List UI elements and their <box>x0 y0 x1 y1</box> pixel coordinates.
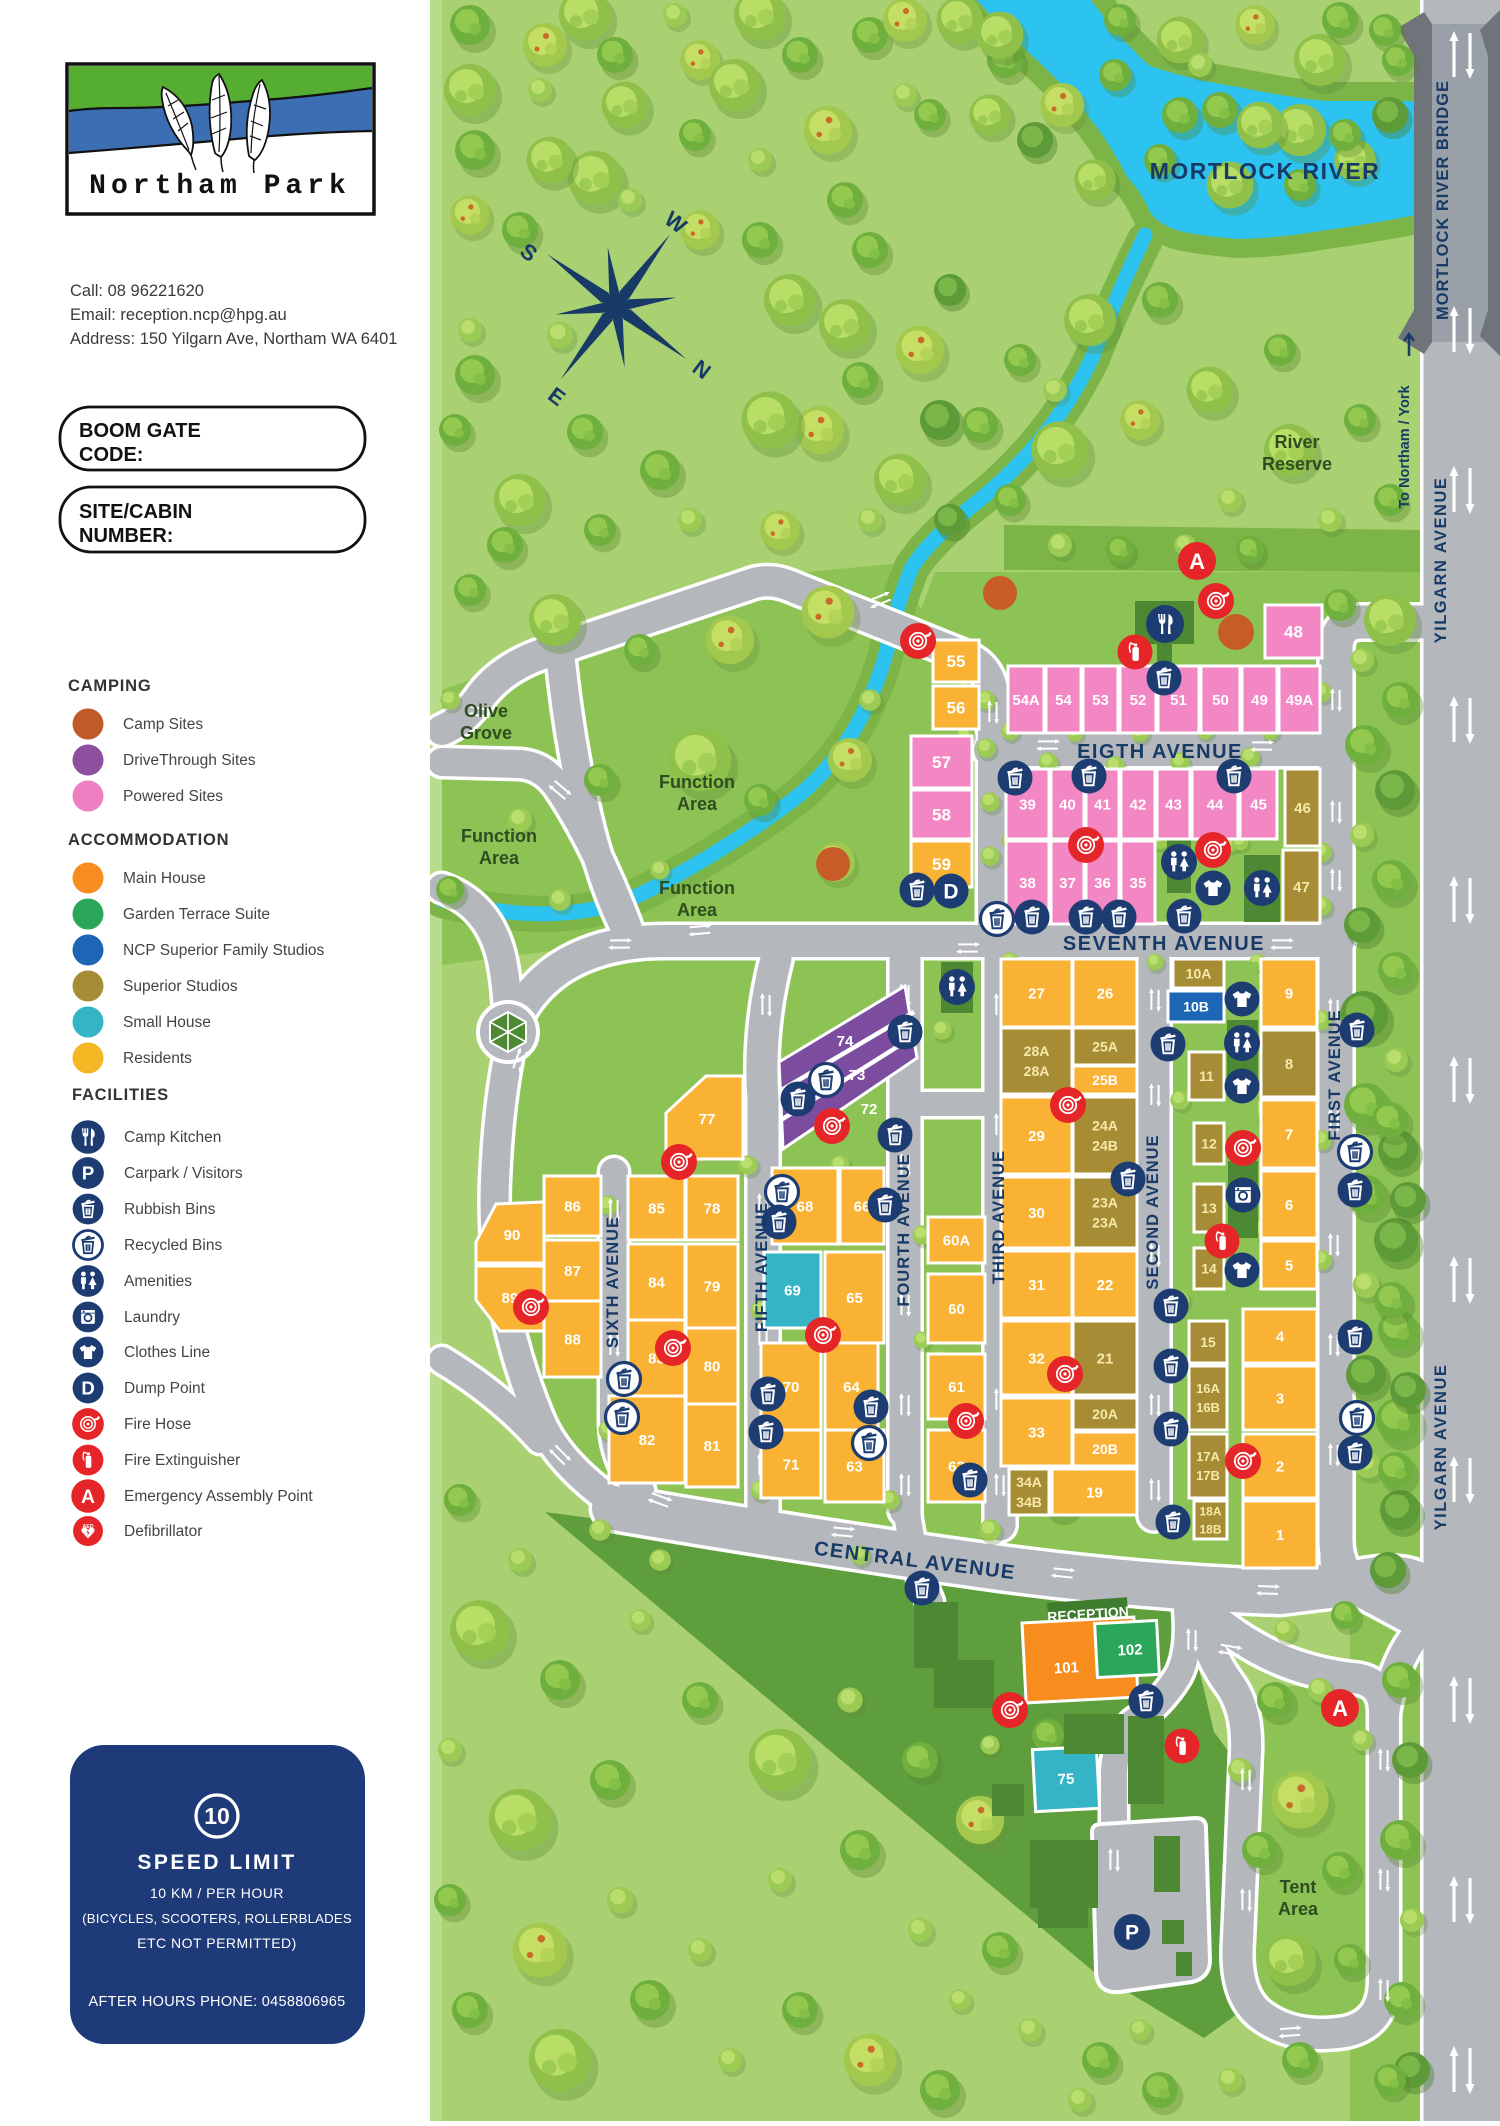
svg-text:SPEED LIMIT: SPEED LIMIT <box>137 1851 296 1874</box>
svg-text:59: 59 <box>932 855 951 874</box>
svg-text:40: 40 <box>1059 796 1076 813</box>
svg-text:49A: 49A <box>1286 692 1314 709</box>
svg-text:Rubbish Bins: Rubbish Bins <box>124 1201 216 1218</box>
svg-text:32: 32 <box>1028 1350 1045 1367</box>
svg-text:9: 9 <box>1285 985 1293 1002</box>
svg-text:101: 101 <box>1053 1659 1079 1677</box>
svg-text:18B: 18B <box>1199 1522 1221 1536</box>
svg-text:4: 4 <box>1276 1328 1285 1345</box>
svg-text:20B: 20B <box>1092 1441 1118 1457</box>
svg-text:48: 48 <box>1284 623 1303 642</box>
svg-text:42: 42 <box>1130 796 1147 813</box>
svg-text:FOURTH AVENUE: FOURTH AVENUE <box>895 1153 913 1306</box>
svg-text:71: 71 <box>783 1456 800 1473</box>
svg-text:13: 13 <box>1201 1200 1217 1216</box>
svg-text:FIFTH AVENUE: FIFTH AVENUE <box>753 1202 771 1332</box>
svg-text:72: 72 <box>861 1101 878 1118</box>
svg-text:82: 82 <box>639 1432 656 1449</box>
svg-text:81: 81 <box>704 1438 721 1455</box>
svg-text:SEVENTH AVENUE: SEVENTH AVENUE <box>1063 933 1265 955</box>
svg-text:Superior Studios: Superior Studios <box>123 978 238 995</box>
svg-text:EIGTH AVENUE: EIGTH AVENUE <box>1077 741 1243 763</box>
svg-text:28A: 28A <box>1024 1063 1050 1079</box>
svg-text:Function: Function <box>461 826 537 846</box>
svg-text:90: 90 <box>504 1227 521 1244</box>
svg-text:Northam Park: Northam Park <box>89 171 351 202</box>
svg-text:45: 45 <box>1250 796 1267 813</box>
svg-text:Camp Kitchen: Camp Kitchen <box>124 1129 221 1146</box>
svg-text:87: 87 <box>564 1263 581 1280</box>
svg-text:Grove: Grove <box>460 723 512 743</box>
svg-text:47: 47 <box>1293 879 1310 896</box>
svg-text:79: 79 <box>704 1278 721 1295</box>
svg-text:6: 6 <box>1285 1197 1293 1214</box>
svg-text:THIRD AVENUE: THIRD AVENUE <box>990 1150 1008 1284</box>
svg-text:29: 29 <box>1028 1128 1045 1145</box>
svg-text:MORTLOCK RIVER: MORTLOCK RIVER <box>1150 158 1381 184</box>
svg-text:23A: 23A <box>1092 1215 1118 1231</box>
svg-text:10A: 10A <box>1186 966 1212 982</box>
svg-text:102: 102 <box>1117 1641 1143 1659</box>
svg-text:River: River <box>1274 432 1319 452</box>
svg-text:Carpark / Visitors: Carpark / Visitors <box>124 1165 243 1182</box>
svg-text:75: 75 <box>1057 1771 1075 1789</box>
svg-text:41: 41 <box>1094 796 1111 813</box>
svg-text:Clothes Line: Clothes Line <box>124 1344 210 1361</box>
svg-text:Dump Point: Dump Point <box>124 1380 206 1397</box>
svg-text:23A: 23A <box>1092 1195 1118 1211</box>
svg-text:7: 7 <box>1285 1126 1293 1143</box>
svg-text:55: 55 <box>947 652 966 671</box>
svg-text:NCP Superior Family Studios: NCP Superior Family Studios <box>123 942 325 959</box>
svg-text:Call: 08 96221620: Call: 08 96221620 <box>70 282 204 300</box>
svg-text:Tent: Tent <box>1280 1877 1317 1897</box>
svg-text:12: 12 <box>1201 1136 1217 1152</box>
svg-text:Reserve: Reserve <box>1262 454 1332 474</box>
svg-text:MORTLOCK RIVER BRIDGE: MORTLOCK RIVER BRIDGE <box>1434 80 1452 320</box>
svg-text:27: 27 <box>1028 985 1045 1002</box>
svg-text:38: 38 <box>1019 875 1036 892</box>
svg-text:34B: 34B <box>1016 1494 1042 1510</box>
svg-text:Residents: Residents <box>123 1050 192 1067</box>
svg-text:18A: 18A <box>1199 1504 1221 1518</box>
svg-text:Email: reception.ncp@hpg.au: Email: reception.ncp@hpg.au <box>70 306 287 324</box>
svg-text:2: 2 <box>1276 1458 1284 1475</box>
svg-text:BOOM GATE: BOOM GATE <box>79 420 201 442</box>
svg-text:1: 1 <box>1276 1527 1284 1544</box>
svg-text:88: 88 <box>564 1331 581 1348</box>
svg-text:15: 15 <box>1200 1334 1216 1350</box>
svg-text:31: 31 <box>1028 1277 1045 1294</box>
svg-text:54: 54 <box>1055 692 1072 709</box>
svg-text:78: 78 <box>704 1200 721 1217</box>
svg-text:Fire Hose: Fire Hose <box>124 1416 191 1433</box>
svg-text:ACCOMMODATION: ACCOMMODATION <box>68 831 229 849</box>
svg-text:57: 57 <box>932 753 951 772</box>
svg-text:FACILITIES: FACILITIES <box>72 1086 169 1104</box>
svg-text:69: 69 <box>784 1282 801 1299</box>
svg-text:33: 33 <box>1028 1424 1045 1441</box>
svg-text:24B: 24B <box>1092 1138 1118 1154</box>
svg-text:22: 22 <box>1097 1277 1114 1294</box>
svg-text:46: 46 <box>1294 800 1311 817</box>
svg-text:43: 43 <box>1165 796 1182 813</box>
svg-text:39: 39 <box>1019 796 1036 813</box>
svg-text:85: 85 <box>648 1200 665 1217</box>
svg-text:SIXTH AVENUE: SIXTH AVENUE <box>604 1216 622 1348</box>
svg-text:Recycled Bins: Recycled Bins <box>124 1237 222 1254</box>
svg-text:Laundry: Laundry <box>124 1309 180 1326</box>
svg-text:51: 51 <box>1170 692 1187 709</box>
svg-text:SECOND AVENUE: SECOND AVENUE <box>1144 1134 1162 1289</box>
svg-text:Area: Area <box>479 848 520 868</box>
svg-text:58: 58 <box>932 806 951 825</box>
svg-text:26: 26 <box>1097 985 1114 1002</box>
svg-text:Function: Function <box>659 772 735 792</box>
svg-text:Camp Sites: Camp Sites <box>123 716 203 733</box>
svg-text:65: 65 <box>846 1290 863 1307</box>
svg-text:5: 5 <box>1285 1257 1293 1274</box>
svg-text:34A: 34A <box>1016 1474 1042 1490</box>
svg-text:3: 3 <box>1276 1390 1284 1407</box>
svg-text:16B: 16B <box>1196 1400 1220 1415</box>
svg-text:YILGARN AVENUE: YILGARN AVENUE <box>1432 1364 1450 1531</box>
svg-text:61: 61 <box>948 1379 965 1396</box>
svg-text:53: 53 <box>1092 692 1109 709</box>
svg-text:10: 10 <box>204 1803 230 1829</box>
svg-text:10B: 10B <box>1183 999 1209 1015</box>
svg-text:FIRST AVENUE: FIRST AVENUE <box>1326 1009 1344 1140</box>
svg-text:25B: 25B <box>1092 1072 1118 1088</box>
svg-text:Olive: Olive <box>464 701 508 721</box>
svg-text:11: 11 <box>1199 1068 1214 1084</box>
svg-text:Defibrillator: Defibrillator <box>124 1523 202 1540</box>
svg-text:(BICYCLES, SCOOTERS, ROLLERBLA: (BICYCLES, SCOOTERS, ROLLERBLADES <box>82 1911 352 1926</box>
svg-text:To Northam / York: To Northam / York <box>1397 384 1413 508</box>
svg-text:Function: Function <box>659 878 735 898</box>
svg-text:Amenities: Amenities <box>124 1273 192 1290</box>
svg-text:74: 74 <box>837 1033 854 1050</box>
svg-text:8: 8 <box>1285 1056 1293 1073</box>
svg-text:Garden Terrace Suite: Garden Terrace Suite <box>123 906 270 923</box>
svg-text:10 KM / PER HOUR: 10 KM / PER HOUR <box>150 1885 284 1901</box>
svg-text:35: 35 <box>1130 875 1147 892</box>
svg-text:49: 49 <box>1251 692 1268 709</box>
svg-text:Area: Area <box>677 794 718 814</box>
svg-text:ETC NOT PERMITTED): ETC NOT PERMITTED) <box>137 1935 297 1951</box>
svg-text:Area: Area <box>1278 1899 1319 1919</box>
svg-text:60A: 60A <box>943 1232 971 1249</box>
svg-text:YILGARN AVENUE: YILGARN AVENUE <box>1432 477 1450 644</box>
svg-text:44: 44 <box>1207 796 1224 813</box>
svg-text:21: 21 <box>1097 1350 1114 1367</box>
svg-text:Emergency Assembly Point: Emergency Assembly Point <box>124 1488 313 1505</box>
svg-text:17B: 17B <box>1196 1468 1220 1483</box>
svg-text:Fire Extinguisher: Fire Extinguisher <box>124 1452 240 1469</box>
svg-text:16A: 16A <box>1196 1381 1220 1396</box>
svg-text:19: 19 <box>1086 1484 1103 1501</box>
svg-text:DriveThrough Sites: DriveThrough Sites <box>123 752 256 769</box>
svg-text:Small House: Small House <box>123 1014 211 1031</box>
svg-text:56: 56 <box>947 699 966 718</box>
svg-text:Area: Area <box>677 900 718 920</box>
svg-text:77: 77 <box>699 1111 716 1128</box>
svg-text:68: 68 <box>797 1198 814 1215</box>
svg-text:AFTER HOURS PHONE: 0458806965: AFTER HOURS PHONE: 0458806965 <box>89 1994 346 2010</box>
svg-text:30: 30 <box>1028 1205 1045 1222</box>
svg-text:73: 73 <box>849 1067 866 1084</box>
svg-text:Powered Sites: Powered Sites <box>123 788 223 805</box>
svg-text:24A: 24A <box>1092 1118 1118 1134</box>
svg-text:25A: 25A <box>1092 1039 1118 1055</box>
svg-text:60: 60 <box>948 1301 965 1318</box>
svg-text:14: 14 <box>1201 1261 1217 1277</box>
svg-text:80: 80 <box>704 1358 721 1375</box>
svg-text:Address: 150 Yilgarn Ave, Nort: Address: 150 Yilgarn Ave, Northam WA 640… <box>70 330 397 348</box>
svg-text:64: 64 <box>843 1379 860 1396</box>
svg-text:36: 36 <box>1094 875 1111 892</box>
svg-text:CAMPING: CAMPING <box>68 677 152 695</box>
svg-text:Main House: Main House <box>123 870 206 887</box>
svg-text:37: 37 <box>1059 875 1076 892</box>
svg-text:SITE/CABIN: SITE/CABIN <box>79 501 192 523</box>
svg-text:50: 50 <box>1212 692 1229 709</box>
svg-text:CODE:: CODE: <box>79 444 143 466</box>
svg-text:84: 84 <box>648 1274 665 1291</box>
svg-text:NUMBER:: NUMBER: <box>79 525 173 547</box>
svg-text:28A: 28A <box>1024 1043 1050 1059</box>
svg-text:86: 86 <box>564 1198 581 1215</box>
svg-text:52: 52 <box>1130 692 1147 709</box>
svg-text:54A: 54A <box>1012 692 1040 709</box>
svg-text:20A: 20A <box>1092 1406 1118 1422</box>
svg-text:63: 63 <box>846 1458 863 1475</box>
svg-text:17A: 17A <box>1196 1449 1220 1464</box>
